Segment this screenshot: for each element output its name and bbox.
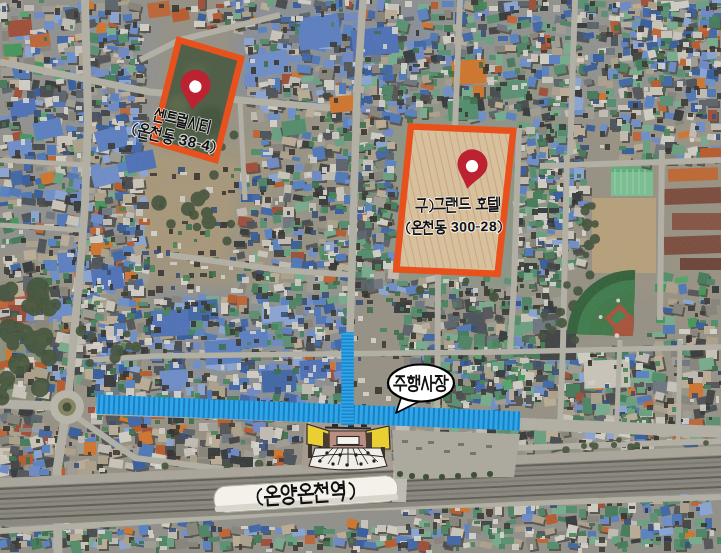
svg-text:300: 300 bbox=[451, 218, 476, 234]
svg-text:28: 28 bbox=[480, 218, 497, 234]
